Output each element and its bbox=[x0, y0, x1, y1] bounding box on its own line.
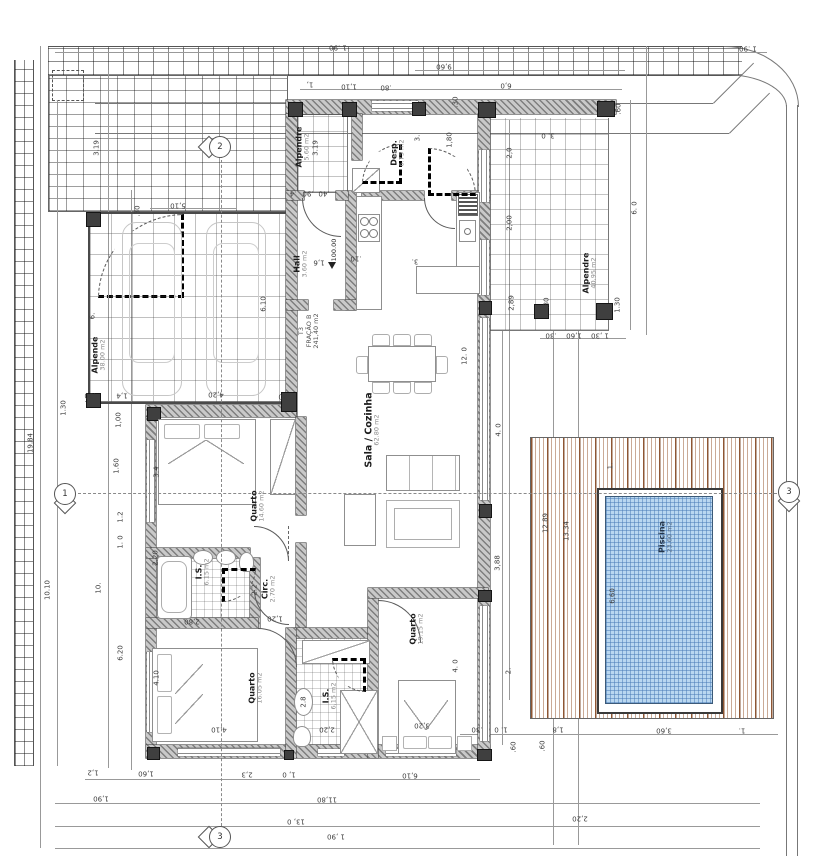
section-marker-number: 2 bbox=[209, 136, 231, 158]
section-marker-number: 3 bbox=[209, 826, 231, 848]
floor-plan-sheet: T3 FRAÇÃO B 241,40 m2 100.00 Alpende38.0… bbox=[0, 0, 816, 856]
section-marker-number: 3 bbox=[778, 481, 800, 503]
section-marker-number: 1 bbox=[54, 483, 76, 505]
section-markers-layer: 2133 bbox=[0, 0, 816, 856]
